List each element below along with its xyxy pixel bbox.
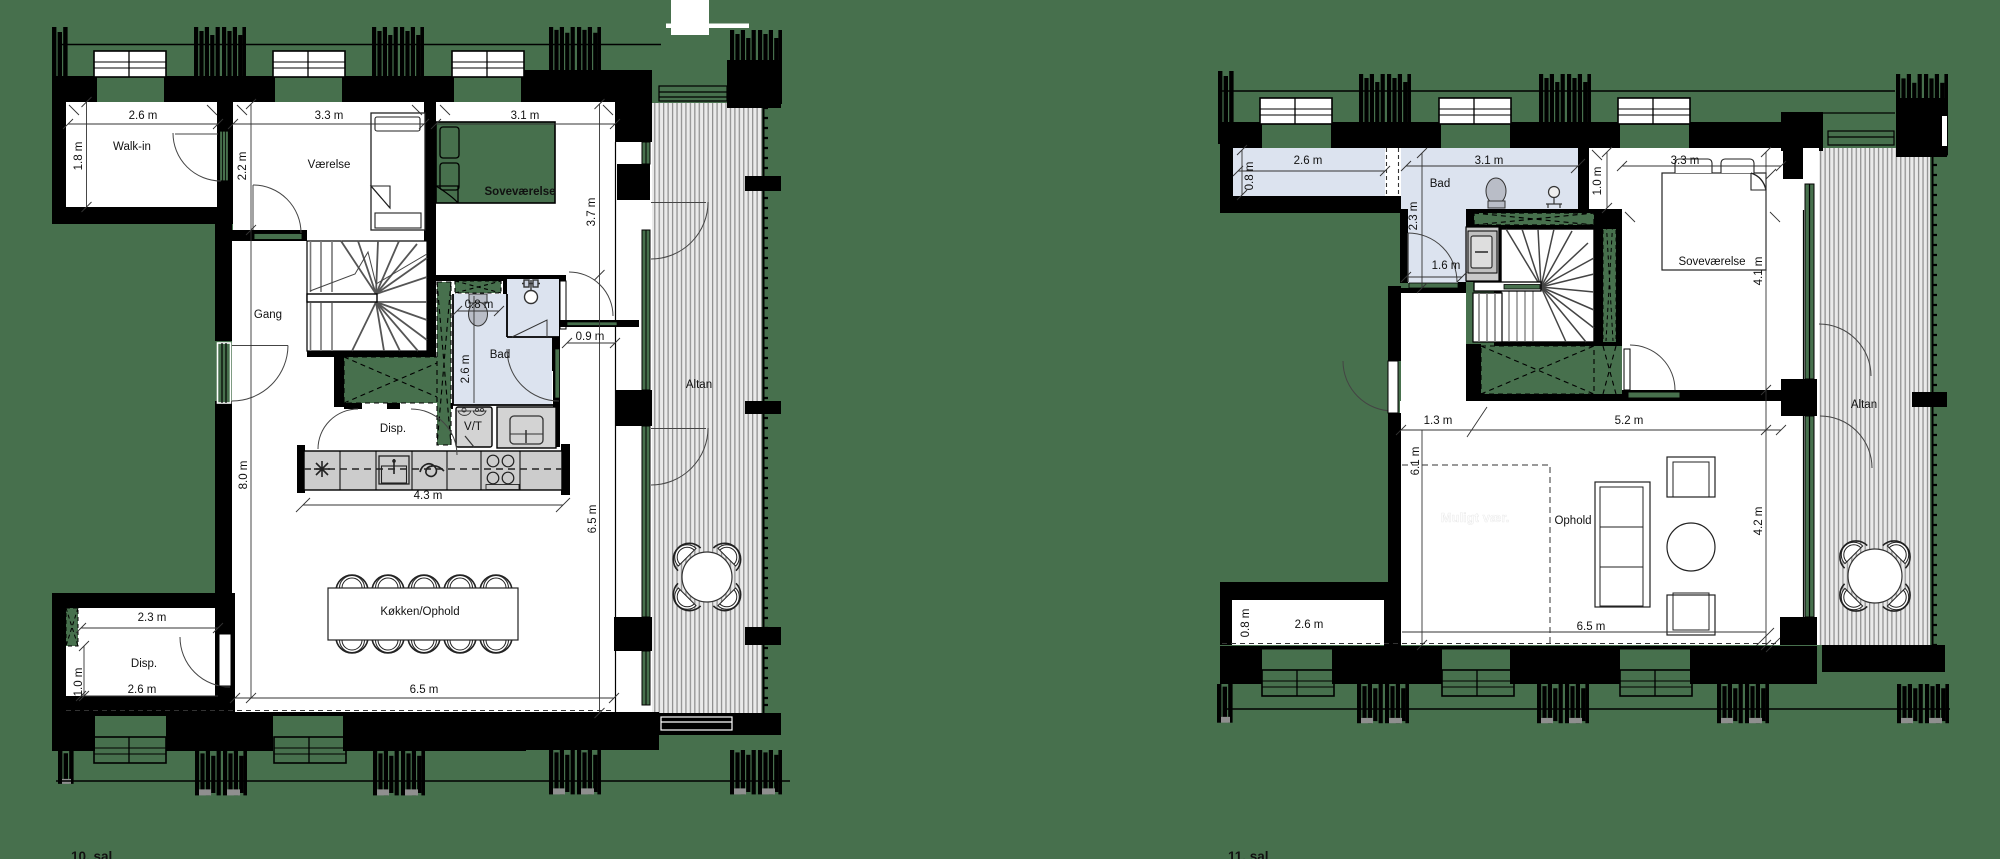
svg-text:3.1 m: 3.1 m [1475, 155, 1504, 167]
svg-text:Gang: Gang [254, 309, 282, 321]
svg-text:3.1 m: 3.1 m [511, 110, 540, 122]
svg-text:2.6 m: 2.6 m [1294, 155, 1323, 167]
svg-text:2.3 m: 2.3 m [138, 612, 167, 624]
svg-text:3.3 m: 3.3 m [315, 110, 344, 122]
svg-text:Soveværelse: Soveværelse [485, 186, 556, 198]
svg-text:Walk-in: Walk-in [113, 141, 151, 153]
svg-text:Bad: Bad [1430, 178, 1450, 190]
svg-text:Køkken/Ophold: Køkken/Ophold [380, 606, 459, 618]
svg-text:0.8 m: 0.8 m [1240, 609, 1252, 638]
svg-text:1.0 m: 1.0 m [73, 668, 85, 697]
svg-text:0.9 m: 0.9 m [576, 331, 605, 343]
svg-text:4.2 m: 4.2 m [1753, 507, 1765, 536]
svg-text:0.8 m: 0.8 m [1244, 162, 1256, 191]
svg-text:Altan: Altan [1851, 399, 1877, 411]
svg-text:Disp.: Disp. [380, 423, 406, 435]
svg-text:2.6 m: 2.6 m [1295, 619, 1324, 631]
svg-text:2.6 m: 2.6 m [460, 355, 472, 384]
svg-text:1.0 m: 1.0 m [1592, 167, 1604, 196]
svg-text:10. sal: 10. sal [71, 849, 112, 859]
svg-text:0.8 m: 0.8 m [465, 299, 494, 311]
svg-text:1.3 m: 1.3 m [1424, 415, 1453, 427]
svg-text:3.7 m: 3.7 m [586, 198, 598, 227]
svg-text:2.6 m: 2.6 m [128, 684, 157, 696]
svg-text:Værelse: Værelse [308, 159, 351, 171]
svg-text:2.3 m: 2.3 m [1408, 202, 1420, 231]
svg-text:11. sal: 11. sal [1228, 849, 1269, 859]
svg-text:4.3 m: 4.3 m [414, 490, 443, 502]
svg-text:Ophold: Ophold [1554, 515, 1591, 527]
svg-text:Muligt vær.: Muligt vær. [1441, 510, 1510, 525]
svg-text:6.5 m: 6.5 m [1577, 621, 1606, 633]
svg-text:6.1 m: 6.1 m [1410, 447, 1422, 476]
svg-text:1.6 m: 1.6 m [1432, 260, 1461, 272]
svg-text:2.6 m: 2.6 m [129, 110, 158, 122]
svg-text:1.8 m: 1.8 m [73, 142, 85, 171]
svg-text:Altan: Altan [686, 379, 712, 391]
svg-text:Bad: Bad [490, 349, 510, 361]
svg-text:4.1 m: 4.1 m [1753, 257, 1765, 286]
svg-text:V/T: V/T [464, 421, 482, 433]
svg-text:5.2 m: 5.2 m [1615, 415, 1644, 427]
svg-text:8.0 m: 8.0 m [238, 461, 250, 490]
svg-text:6.5 m: 6.5 m [410, 684, 439, 696]
svg-text:2.2 m: 2.2 m [237, 152, 249, 181]
svg-text:Soveværelse: Soveværelse [1678, 256, 1745, 268]
svg-text:3.3 m: 3.3 m [1671, 155, 1700, 167]
svg-text:Disp.: Disp. [131, 658, 157, 670]
svg-text:6.5 m: 6.5 m [587, 505, 599, 534]
